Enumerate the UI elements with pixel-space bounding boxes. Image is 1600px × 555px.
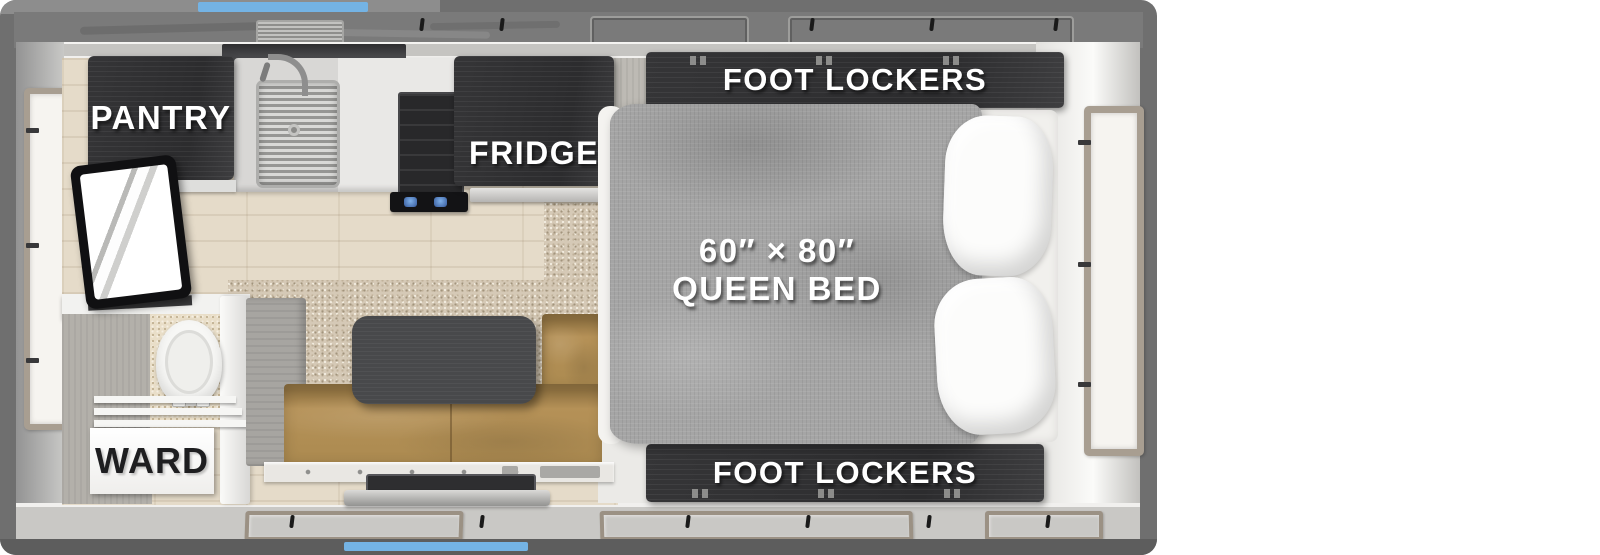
camper-floorplan: WARD PANTRY FRIDGE (0, 0, 1157, 555)
hinge-icon (1078, 140, 1091, 145)
bed-size-label: 60″ × 80″ (612, 232, 942, 270)
wardrobe-shelf (94, 420, 248, 427)
bottom-hatch-panel (244, 511, 463, 541)
wardrobe-shelf (94, 396, 236, 403)
hinge-icon (26, 358, 39, 363)
hinge-icon (26, 128, 39, 133)
sink-drain-icon (288, 124, 300, 136)
fridge-cabinet: FRIDGE (454, 56, 614, 186)
ward-label: WARD (95, 440, 209, 482)
wardrobe-shelf (94, 408, 242, 415)
bench-seat-right (542, 314, 602, 390)
awning-accent-bottom (344, 542, 528, 551)
bottom-hatch-panel (985, 511, 1103, 541)
entry-step-lip (344, 490, 550, 506)
foot-lockers-bottom-label: FOOT LOCKERS (713, 455, 977, 491)
hinge-icon (1078, 382, 1091, 387)
kickplate-inset (540, 466, 600, 478)
locker-handle-icon (944, 489, 960, 498)
awning-accent-top (198, 2, 368, 12)
tv-icon (70, 154, 193, 310)
locker-handle-icon (816, 56, 832, 65)
locker-handle-icon (690, 56, 706, 65)
pillow (941, 114, 1055, 278)
foot-lockers-top-label: FOOT LOCKERS (723, 62, 987, 98)
bed-label: 60″ × 80″ QUEEN BED (612, 232, 942, 308)
locker-handle-icon (818, 489, 834, 498)
right-window-panel (1084, 106, 1144, 456)
bottom-hatch-panel (600, 511, 914, 541)
locker-handle-icon (943, 56, 959, 65)
burner-knob-icon (404, 197, 417, 207)
bottom-wall-band (16, 503, 1140, 541)
pantry-label: PANTRY (91, 99, 232, 137)
toilet-seat (165, 330, 213, 394)
rear-frame-strip (0, 539, 1157, 555)
carpet-strip (544, 194, 600, 286)
tv-screen (80, 164, 183, 300)
pillow (932, 275, 1058, 437)
hinge-icon (26, 243, 39, 248)
hinge-icon (1078, 262, 1091, 267)
fridge-label: FRIDGE (469, 135, 599, 172)
burner-knob-icon (434, 197, 447, 207)
wardrobe-box: WARD (90, 428, 214, 494)
locker-handle-icon (692, 489, 708, 498)
foot-lockers-top: FOOT LOCKERS (646, 52, 1064, 108)
bed-name-label: QUEEN BED (612, 270, 942, 308)
dinette-table (352, 316, 536, 404)
screenshot: WARD PANTRY FRIDGE (0, 0, 1600, 555)
fridge-drawer (470, 188, 600, 202)
burner-bar (390, 192, 468, 212)
